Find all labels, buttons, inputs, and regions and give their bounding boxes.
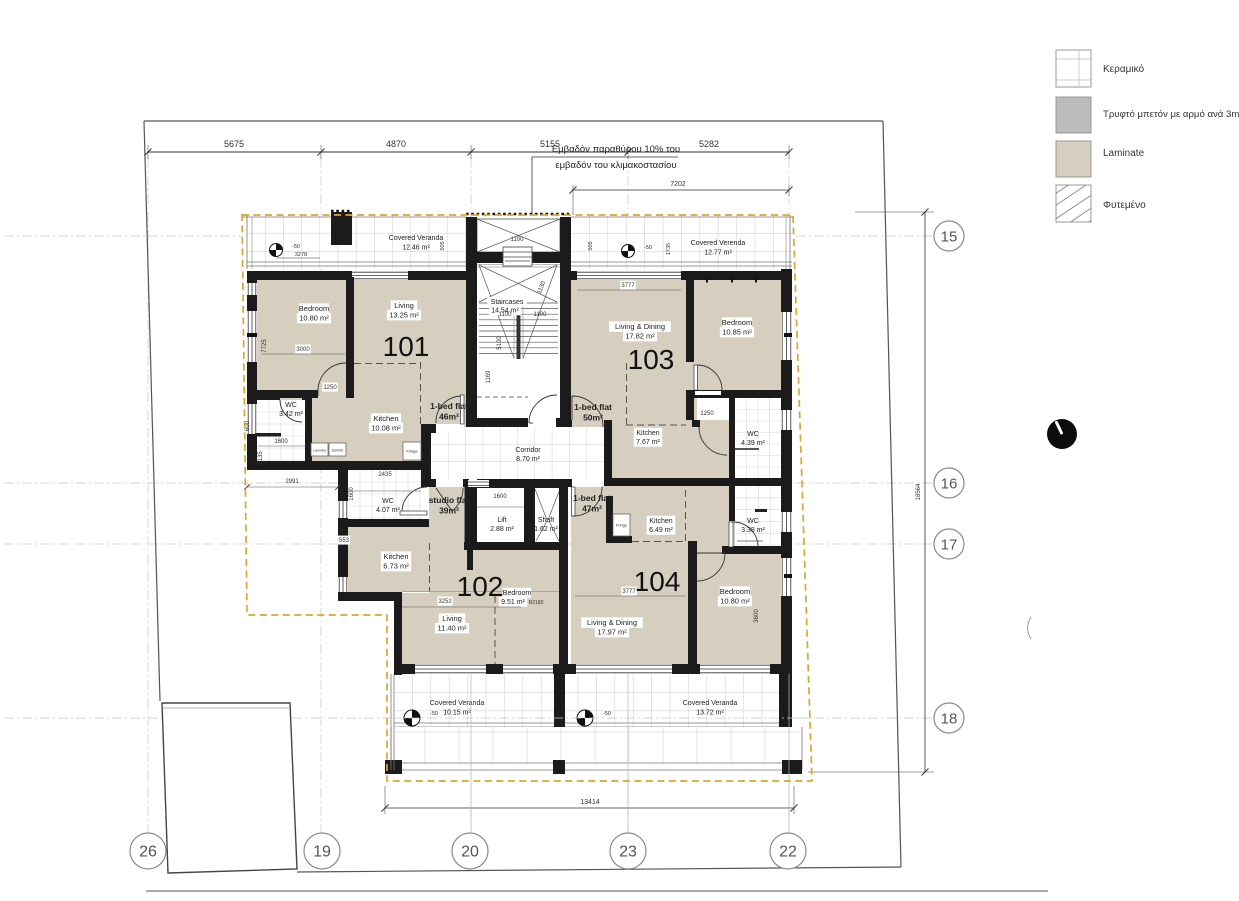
svg-text:2.88 m²: 2.88 m² [490, 526, 514, 533]
svg-text:13.25 m²: 13.25 m² [389, 311, 419, 320]
svg-text:3278: 3278 [295, 252, 307, 258]
svg-text:1250: 1250 [700, 411, 714, 417]
svg-text:20: 20 [461, 844, 479, 861]
svg-text:Τρυφτό μπετόν με αρμό ανά 3m: Τρυφτό μπετόν με αρμό ανά 3m [1103, 109, 1239, 120]
svg-text:DshWs: DshWs [332, 449, 344, 453]
svg-text:2435: 2435 [378, 472, 392, 478]
svg-text:1100: 1100 [499, 312, 513, 318]
svg-text:Bedroom: Bedroom [503, 590, 532, 597]
svg-text:12.46 m²: 12.46 m² [402, 245, 430, 252]
svg-text:6.73 m²: 6.73 m² [383, 562, 409, 571]
svg-text:7202: 7202 [670, 181, 686, 188]
svg-text:16: 16 [941, 475, 958, 492]
svg-text:-50: -50 [292, 244, 300, 250]
svg-text:3252: 3252 [438, 599, 452, 605]
svg-text:3777: 3777 [622, 589, 636, 595]
svg-text:1100: 1100 [534, 312, 548, 318]
svg-text:17.82 m²: 17.82 m² [625, 332, 655, 341]
svg-text:18564: 18564 [916, 483, 922, 500]
svg-text:3000: 3000 [296, 347, 310, 353]
svg-text:Covered Verenda: Covered Verenda [691, 240, 746, 247]
svg-text:10.85 m²: 10.85 m² [722, 328, 752, 337]
svg-text:505: 505 [440, 241, 446, 250]
svg-text:505: 505 [588, 241, 594, 250]
svg-text:-50: -50 [430, 711, 438, 717]
svg-text:22: 22 [779, 844, 797, 861]
svg-text:WC: WC [382, 498, 394, 505]
svg-text:18: 18 [941, 710, 958, 727]
svg-text:1.62 m²: 1.62 m² [534, 526, 558, 533]
svg-text:studio flat: studio flat [429, 495, 470, 505]
svg-text:Fridge: Fridge [406, 449, 418, 454]
svg-text:1-bed flat: 1-bed flat [430, 401, 468, 411]
svg-text:553: 553 [339, 538, 350, 544]
svg-text:Fridge: Fridge [616, 523, 628, 528]
svg-text:10.80 m²: 10.80 m² [299, 314, 329, 323]
svg-text:Laundry: Laundry [313, 449, 326, 453]
svg-text:1-bed flat: 1-bed flat [574, 402, 612, 412]
svg-text:17.97 m²: 17.97 m² [597, 628, 627, 637]
svg-text:Κεραμικό: Κεραμικό [1103, 63, 1144, 75]
svg-text:4.39 m²: 4.39 m² [741, 440, 765, 447]
svg-text:5282: 5282 [699, 139, 719, 149]
svg-text:1735: 1735 [666, 243, 672, 255]
svg-text:10.08 m²: 10.08 m² [371, 424, 401, 433]
svg-text:Living & Dining: Living & Dining [615, 322, 665, 331]
svg-text:Living & Dining: Living & Dining [587, 618, 637, 627]
svg-text:εμβαδόν του κλιμακοστασίου: εμβαδόν του κλιμακοστασίου [555, 160, 676, 171]
svg-text:Staircases: Staircases [491, 299, 524, 306]
svg-text:1600: 1600 [349, 487, 355, 501]
svg-text:1100: 1100 [511, 237, 525, 243]
svg-text:Bedroom: Bedroom [299, 304, 329, 313]
svg-text:4870: 4870 [386, 139, 406, 149]
svg-text:17: 17 [941, 536, 958, 553]
svg-text:1-bed flat: 1-bed flat [573, 493, 611, 503]
svg-text:101: 101 [383, 331, 430, 362]
svg-text:6.49 m²: 6.49 m² [649, 527, 673, 534]
svg-text:-50: -50 [644, 245, 652, 251]
svg-text:13.72 m²: 13.72 m² [696, 710, 724, 717]
svg-text:8.70 m²: 8.70 m² [516, 456, 540, 463]
svg-text:Φυτεμένο: Φυτεμένο [1103, 199, 1146, 211]
svg-text:19: 19 [313, 844, 331, 861]
svg-text:103: 103 [628, 344, 675, 375]
svg-text:Covered Veranda: Covered Veranda [683, 700, 738, 707]
svg-text:26: 26 [139, 844, 157, 861]
svg-text:3600: 3600 [754, 609, 760, 623]
svg-text:Lift: Lift [497, 517, 506, 524]
svg-text:WC: WC [747, 518, 759, 525]
svg-text:Kitchen: Kitchen [373, 414, 398, 423]
svg-text:1169: 1169 [486, 370, 492, 384]
svg-text:46m²: 46m² [439, 412, 459, 422]
svg-text:Covered Veranda: Covered Veranda [430, 700, 485, 707]
svg-text:13414: 13414 [580, 799, 600, 806]
svg-text:4.07 m²: 4.07 m² [376, 507, 400, 514]
svg-text:Laminate: Laminate [1103, 148, 1145, 159]
svg-text:104: 104 [634, 566, 681, 597]
svg-text:600: 600 [245, 420, 251, 431]
svg-text:1250: 1250 [323, 385, 337, 391]
svg-text:Living: Living [394, 301, 414, 310]
svg-text:3777: 3777 [621, 283, 635, 289]
svg-text:Bedroom: Bedroom [722, 318, 752, 327]
svg-text:2135: 2135 [258, 451, 264, 465]
svg-text:Shaft: Shaft [538, 517, 554, 524]
svg-text:11.40 m²: 11.40 m² [437, 624, 467, 633]
svg-text:R2180: R2180 [529, 600, 544, 606]
svg-text:Kitchen: Kitchen [649, 518, 672, 525]
svg-text:Kitchen: Kitchen [383, 552, 408, 561]
svg-text:5675: 5675 [224, 139, 244, 149]
svg-text:Covered Veranda: Covered Veranda [389, 235, 444, 242]
svg-text:102: 102 [457, 571, 504, 602]
svg-text:47m²: 47m² [582, 504, 602, 514]
svg-text:-50: -50 [603, 711, 611, 717]
svg-text:50m²: 50m² [583, 413, 603, 423]
svg-text:15: 15 [941, 228, 958, 245]
svg-text:Kitchen: Kitchen [636, 430, 659, 437]
svg-text:3.42 m²: 3.42 m² [279, 411, 303, 418]
svg-text:Living: Living [442, 614, 462, 623]
svg-text:1600: 1600 [274, 439, 288, 445]
svg-text:Bedroom: Bedroom [720, 587, 750, 596]
svg-text:12.77 m²: 12.77 m² [704, 250, 732, 257]
svg-text:2991: 2991 [285, 479, 299, 485]
svg-text:WC: WC [285, 402, 297, 409]
svg-text:Corridor: Corridor [515, 447, 541, 454]
svg-text:7.67 m²: 7.67 m² [636, 439, 660, 446]
svg-text:7725: 7725 [262, 339, 268, 353]
svg-text:Εμβαδόν παραθύρου 10% του: Εμβαδόν παραθύρου 10% του [552, 144, 680, 155]
svg-text:WC: WC [747, 431, 759, 438]
svg-text:9.51 m²: 9.51 m² [501, 599, 525, 606]
svg-text:39m²: 39m² [439, 506, 459, 516]
svg-text:1600: 1600 [493, 494, 507, 500]
svg-text:10.80 m²: 10.80 m² [720, 597, 750, 606]
svg-text:3.38 m²: 3.38 m² [741, 527, 765, 534]
svg-text:23: 23 [619, 844, 637, 861]
svg-text:5100: 5100 [497, 336, 503, 350]
svg-text:10.15 m²: 10.15 m² [443, 710, 471, 717]
